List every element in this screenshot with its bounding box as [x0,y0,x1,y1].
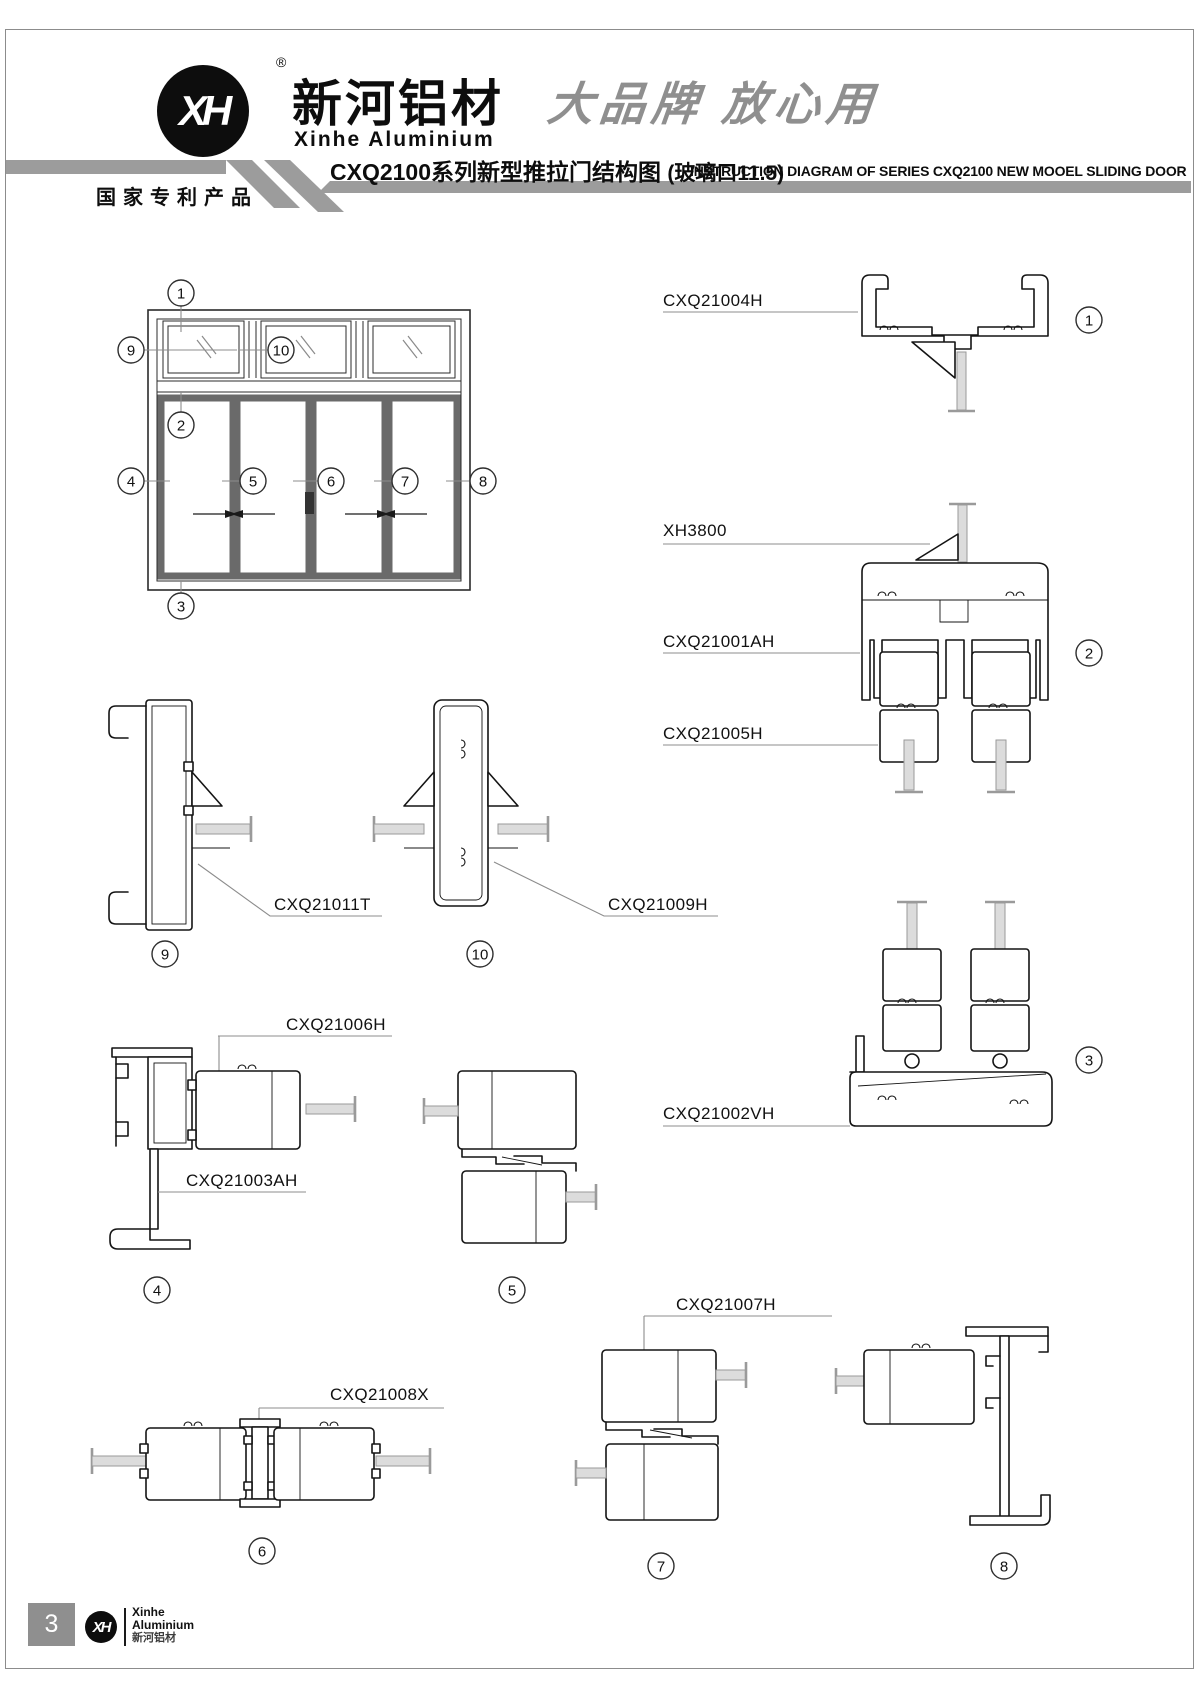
banner-left-bar [6,160,226,174]
label-transom-mullion: CXQ21009H [608,895,708,914]
brand-name-english: Xinhe Aluminium [294,128,495,152]
registered-mark: ® [276,54,286,70]
section-9-transom-jamb: CXQ21011T 9 [109,700,382,967]
footer-divider [124,1608,126,1646]
section-2-transom-assembly: XH3800 CXQ21001AH CXQ21005H [663,504,1102,792]
svg-text:10: 10 [472,947,489,964]
svg-text:7: 7 [401,474,409,491]
footer-brand-line1: Xinhe [132,1606,165,1618]
svg-text:3: 3 [1085,1053,1093,1070]
glass-section-4 [306,1104,354,1114]
callout-4: 4 [118,468,144,494]
brand-slogan: 大品牌 放心用 [545,68,883,134]
label-door-stile: CXQ21006H [286,1015,386,1034]
glass-section-8 [836,1376,864,1386]
transom-jamb-profile [109,700,230,930]
svg-text:7: 7 [657,1559,665,1576]
page-number: 3 [28,1603,75,1646]
section-1-marker: 1 [1076,307,1102,333]
callout-6: 6 [318,468,344,494]
glass-below-right-rail [996,740,1006,790]
meeting-stile-lower-profile-7 [606,1429,718,1520]
svg-text:6: 6 [258,1544,266,1561]
meeting-stile-upper-profile [458,1071,576,1165]
door-bottom-rail-right-profile [971,902,1029,1068]
technical-drawing: 1 9 10 2 4 5 6 7 8 3 CXQ21004H [0,240,1200,1600]
company-logo: XH [150,62,260,162]
label-side-jamb: CXQ21003AH [186,1171,298,1190]
glass-section-9 [196,824,250,834]
side-jamb-profile [110,1048,192,1249]
glass-section-2 [958,505,967,562]
callout-5: 5 [240,468,266,494]
page-title-english: INSTRUCTION DIAGRAM OF SERIES CXQ2100 NE… [690,163,1186,179]
svg-text:8: 8 [1000,1559,1008,1576]
transom-mullion-profile [404,700,518,906]
catalog-page: XH ® 新河铝材 Xinhe Aluminium 大品牌 放心用 国家专利产品… [0,0,1200,1697]
footer-brand-line3: 新河铝材 [132,1632,176,1644]
label-top-frame: CXQ21004H [663,291,763,310]
svg-text:5: 5 [249,474,257,491]
svg-text:9: 9 [127,343,135,360]
label-center-connector: CXQ21008X [330,1385,429,1404]
svg-text:8: 8 [479,474,487,491]
footer-brand-line2: Aluminium [132,1619,194,1631]
section-8-marker: 8 [991,1553,1017,1579]
section-10-marker: 10 [467,941,493,967]
section-5-meeting-stiles: 5 [424,1071,596,1303]
svg-text:2: 2 [177,418,185,435]
section-8-stile-at-jamb: 8 [836,1327,1050,1579]
svg-text:2: 2 [1085,646,1093,663]
page-title-chinese: CXQ2100系列新型推拉门结构图 [330,159,661,185]
label-glazing-bead: XH3800 [663,521,727,540]
label-door-top-rail: CXQ21005H [663,724,763,743]
label-meeting-stile: CXQ21007H [676,1295,776,1314]
transom-pane-3 [368,321,455,378]
glass-left-section-10 [374,824,424,834]
glass-left-section-7 [576,1468,606,1478]
door-stile-profile-8 [864,1344,974,1424]
brand-name-chinese: 新河铝材 [292,64,504,136]
svg-text:4: 4 [153,1283,161,1300]
logo-monogram: XH [177,87,234,134]
callout-1: 1 [168,280,194,306]
callout-8: 8 [470,468,496,494]
callout-7: 7 [392,468,418,494]
side-jamb-profile-8 [966,1327,1050,1525]
section-4-jamb-stile: CXQ21006H CXQ21003AH [110,1015,392,1303]
glass-right-section-6 [376,1456,430,1466]
glass-right-section-10 [498,824,548,834]
svg-text:4: 4 [127,474,135,491]
section-9-marker: 9 [152,941,178,967]
door-bottom-rail-left-profile [883,902,941,1068]
label-bottom-sill: CXQ21002VH [663,1104,775,1123]
left-stile-profile-6 [140,1422,246,1500]
glazing-bead-profile [916,534,958,560]
patent-badge: 国家专利产品 [96,181,258,210]
label-transom-frame: CXQ21001AH [663,632,775,651]
section-4-marker: 4 [144,1277,170,1303]
meeting-stile-upper-profile-7 [602,1350,716,1438]
glass-left-section-6 [92,1456,146,1466]
callout-10: 10 [268,337,294,363]
svg-text:1: 1 [1085,313,1093,330]
section-6-marker: 6 [249,1538,275,1564]
svg-text:10: 10 [273,343,290,360]
meeting-stile-lower-profile [462,1156,576,1243]
svg-text:6: 6 [327,474,335,491]
section-5-marker: 5 [499,1277,525,1303]
callout-9: 9 [118,337,144,363]
svg-text:5: 5 [508,1283,516,1300]
section-3-sill-assembly: CXQ21002VH 3 [663,902,1102,1126]
section-2-marker: 2 [1076,640,1102,666]
section-7-meeting-stiles: CXQ21007H 7 [576,1295,832,1579]
section-3-marker: 3 [1076,1047,1102,1073]
glass-right-section-5 [566,1192,596,1202]
right-stile-profile-6 [274,1422,380,1500]
footer-logo: XH [84,1608,120,1646]
svg-text:1: 1 [177,286,185,303]
glass-below-left-rail [904,740,914,790]
section-6-center-connector: CXQ21008X [92,1385,444,1564]
label-transom-jamb: CXQ21011T [274,895,371,914]
glass-left-section-5 [424,1106,458,1116]
door-handle [305,492,314,514]
section-1-top-frame: CXQ21004H 1 [663,275,1102,411]
door-stile-profile-4 [188,1065,300,1149]
callout-2: 2 [168,412,194,438]
svg-text:3: 3 [177,599,185,616]
top-frame-profile [862,275,1048,378]
callout-3: 3 [168,593,194,619]
section-7-marker: 7 [648,1553,674,1579]
glass-right-section-7 [716,1370,746,1380]
elevation-drawing: 1 9 10 2 4 5 6 7 8 3 [118,280,496,619]
transom-sill [157,381,461,392]
svg-text:9: 9 [161,947,169,964]
glass-section-1 [957,352,966,410]
